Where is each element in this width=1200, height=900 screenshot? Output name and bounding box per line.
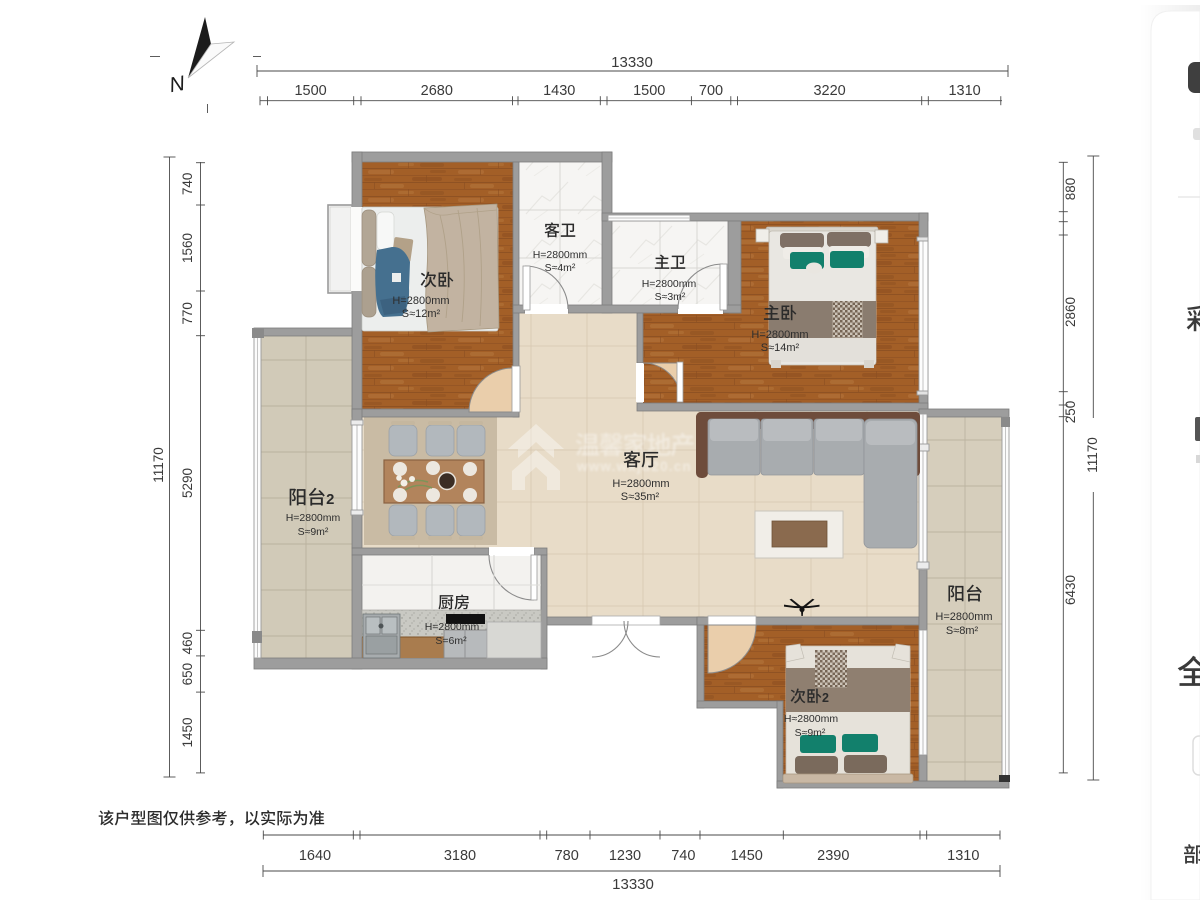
svg-text:1560: 1560 xyxy=(180,233,195,263)
svg-text:880: 880 xyxy=(1063,178,1078,201)
svg-text:1450: 1450 xyxy=(180,717,195,747)
svg-text:H=2800mm: H=2800mm xyxy=(751,329,808,341)
svg-text:13330: 13330 xyxy=(611,54,653,71)
svg-text:6430: 6430 xyxy=(1063,575,1078,605)
svg-text:H=2800mm: H=2800mm xyxy=(935,611,992,623)
svg-text:H≈2800mm: H≈2800mm xyxy=(784,713,838,725)
svg-text:3220: 3220 xyxy=(813,83,845,99)
svg-text:650: 650 xyxy=(180,663,195,686)
svg-text:11170: 11170 xyxy=(1085,437,1100,473)
svg-text:460: 460 xyxy=(180,632,195,655)
svg-text:1450: 1450 xyxy=(731,848,763,864)
svg-text:3180: 3180 xyxy=(444,848,476,864)
svg-text:11170: 11170 xyxy=(151,447,166,483)
svg-text:5290: 5290 xyxy=(180,468,195,498)
svg-text:H=2800mm: H=2800mm xyxy=(612,478,669,490)
svg-text:2: 2 xyxy=(326,492,334,508)
svg-text:250: 250 xyxy=(1063,401,1078,424)
svg-text:13330: 13330 xyxy=(612,876,654,893)
svg-text:S≈35m²: S≈35m² xyxy=(621,491,660,503)
svg-text:S≈3m²: S≈3m² xyxy=(655,291,686,303)
svg-text:S=6m²: S=6m² xyxy=(435,635,467,647)
svg-text:740: 740 xyxy=(671,848,695,864)
svg-text:S≈14m²: S≈14m² xyxy=(761,342,800,354)
svg-text:780: 780 xyxy=(555,848,579,864)
svg-text:S≈8m²: S≈8m² xyxy=(946,625,979,637)
svg-text:S≈4m²: S≈4m² xyxy=(545,262,576,274)
svg-text:2680: 2680 xyxy=(421,83,453,99)
svg-text:H=2800mm: H=2800mm xyxy=(425,621,480,633)
svg-text:H=2800mm: H=2800mm xyxy=(533,249,588,261)
svg-text:H=2800mm: H=2800mm xyxy=(642,278,697,290)
svg-text:770: 770 xyxy=(180,302,195,325)
svg-text:1640: 1640 xyxy=(299,848,331,864)
svg-text:1430: 1430 xyxy=(543,83,575,99)
svg-text:S≈12m²: S≈12m² xyxy=(402,308,441,320)
svg-text:1500: 1500 xyxy=(294,83,326,99)
svg-text:2390: 2390 xyxy=(817,848,849,864)
svg-text:700: 700 xyxy=(699,83,723,99)
svg-text:S≈9m²: S≈9m² xyxy=(795,727,826,739)
svg-text:1500: 1500 xyxy=(633,83,665,99)
svg-text:H=2800mm: H=2800mm xyxy=(392,295,449,307)
svg-text:1310: 1310 xyxy=(948,83,980,99)
svg-text:2: 2 xyxy=(822,691,829,705)
svg-text:H=2800mm: H=2800mm xyxy=(286,512,341,524)
svg-text:740: 740 xyxy=(180,173,195,196)
svg-text:1310: 1310 xyxy=(947,848,979,864)
svg-text:S≈9m²: S≈9m² xyxy=(298,526,329,538)
svg-text:1230: 1230 xyxy=(609,848,641,864)
svg-text:2860: 2860 xyxy=(1063,297,1078,327)
